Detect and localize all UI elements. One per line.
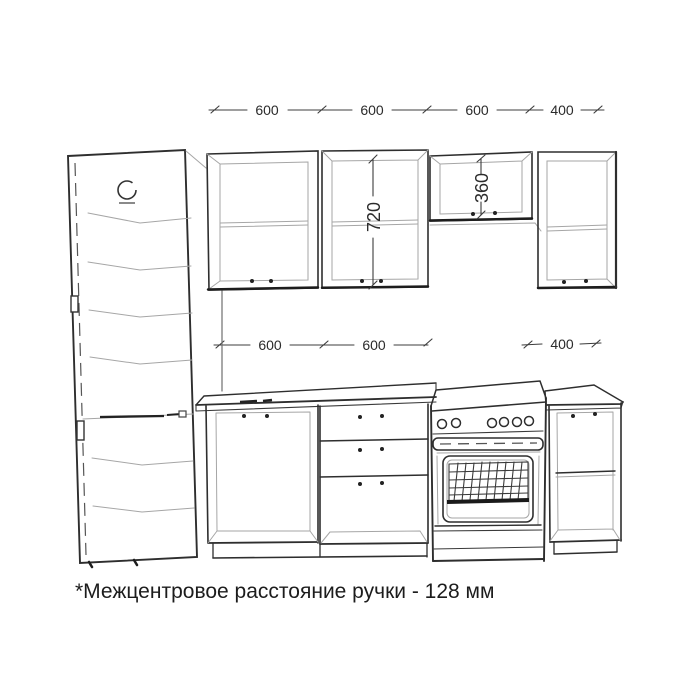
refrigerator <box>68 150 206 567</box>
stove-knob <box>513 418 522 427</box>
dim-top-400: 400 <box>550 102 574 118</box>
dim-height-720: 720 <box>364 202 384 232</box>
countertop-left <box>196 383 436 411</box>
stove <box>431 381 546 561</box>
stove-knob <box>525 417 534 426</box>
stove-knob <box>452 419 461 428</box>
dim-top-600-1: 600 <box>255 102 279 118</box>
plinth-left <box>213 543 427 558</box>
fridge-brand-logo <box>118 181 136 203</box>
dimension-row-top: 600 600 600 400 <box>209 102 604 118</box>
fridge-lower-handle <box>77 421 84 440</box>
dimension-row-middle: 600 600 400 <box>214 291 601 391</box>
dimension-720: 720 <box>364 155 384 289</box>
plinth-right <box>554 541 617 554</box>
wall-cabinet-600-1 <box>207 151 318 290</box>
dim-height-360: 360 <box>472 173 492 203</box>
drawing-canvas: 600 600 600 400 600 600 400 <box>0 0 700 700</box>
fridge-door-split <box>83 411 193 419</box>
kitchen-elevation-drawing: 600 600 600 400 600 600 400 <box>0 0 700 700</box>
oven-door <box>435 456 541 526</box>
dim-mid-400: 400 <box>550 336 574 352</box>
base-cabinet-400-open <box>549 403 621 542</box>
fridge-depth-edge <box>186 151 206 168</box>
countertop-right <box>545 385 623 410</box>
base-cabinet-600-door <box>206 405 318 543</box>
base-cabinet-600-drawers <box>320 404 428 544</box>
stove-cooktop <box>431 381 546 411</box>
stove-bottom-drawer <box>433 530 544 561</box>
dim-top-600-3: 600 <box>465 102 489 118</box>
stove-knob <box>438 420 447 429</box>
dim-mid-600-2: 600 <box>362 337 386 353</box>
fridge-upper-handle <box>71 296 78 312</box>
oven-rack <box>447 462 529 502</box>
oven-handle <box>433 438 543 453</box>
dim-top-600-2: 600 <box>360 102 384 118</box>
handle-note: *Межцентровое расстояние ручки - 128 мм <box>75 580 494 603</box>
stove-control-panel <box>433 417 543 435</box>
fridge-shelves <box>88 213 194 512</box>
dim-mid-600-1: 600 <box>258 337 282 353</box>
fridge-door-seam <box>75 163 86 555</box>
stove-knob <box>500 418 509 427</box>
stove-knob <box>488 419 497 428</box>
wall-cabinet-400 <box>538 152 616 288</box>
dimension-360: 360 <box>472 155 492 219</box>
